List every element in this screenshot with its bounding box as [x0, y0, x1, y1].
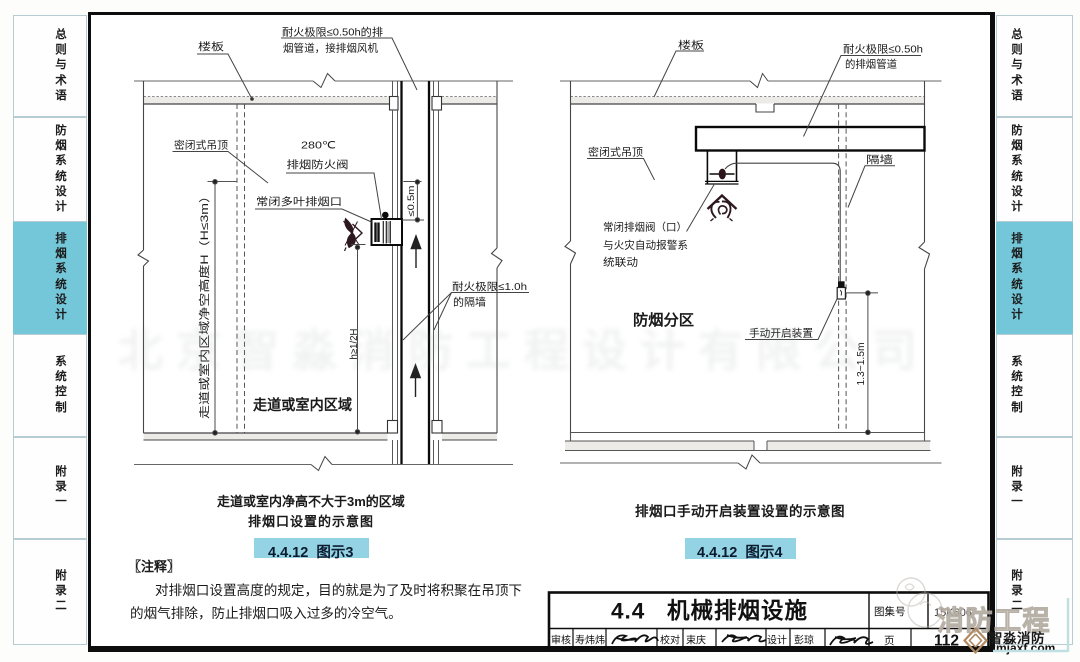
svg-text:束庆: 束庆 [686, 634, 706, 647]
svg-text:彭琼: 彭琼 [794, 634, 814, 647]
svg-text:4.4 机械排烟设施: 4.4 机械排烟设施 [611, 598, 808, 624]
svg-text:校对: 校对 [660, 634, 680, 647]
svg-text:审核: 审核 [551, 634, 571, 647]
svg-text:设计: 设计 [767, 634, 787, 647]
svg-text:寿炜炜: 寿炜炜 [575, 634, 605, 647]
